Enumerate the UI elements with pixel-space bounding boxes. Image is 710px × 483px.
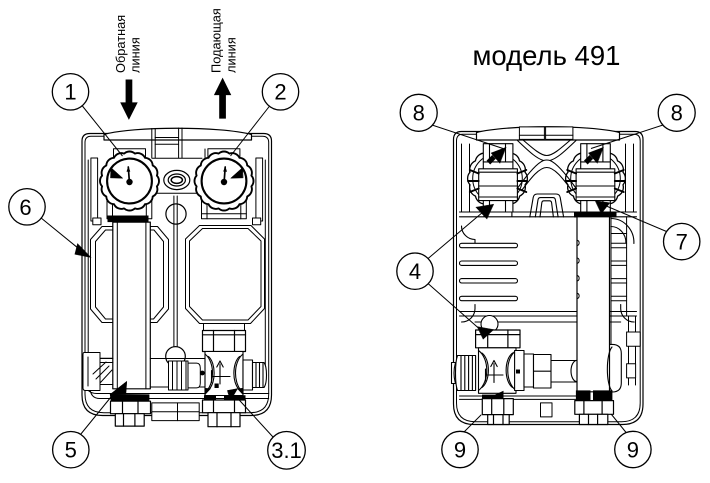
svg-text:2: 2 — [274, 80, 286, 105]
svg-text:9: 9 — [454, 437, 466, 462]
svg-text:7: 7 — [676, 229, 688, 254]
svg-text:модель 491: модель 491 — [473, 40, 621, 71]
svg-text:3.1: 3.1 — [271, 438, 302, 463]
svg-text:Подающая: Подающая — [209, 8, 224, 73]
svg-text:линия: линия — [128, 37, 143, 73]
svg-text:8: 8 — [671, 101, 683, 126]
svg-text:9: 9 — [627, 437, 639, 462]
svg-text:линия: линия — [223, 37, 238, 73]
svg-text:5: 5 — [65, 438, 77, 463]
svg-text:Обратная: Обратная — [113, 15, 128, 73]
svg-text:6: 6 — [19, 195, 31, 220]
svg-text:8: 8 — [413, 101, 425, 126]
svg-text:4: 4 — [409, 259, 421, 284]
svg-text:1: 1 — [64, 80, 76, 105]
